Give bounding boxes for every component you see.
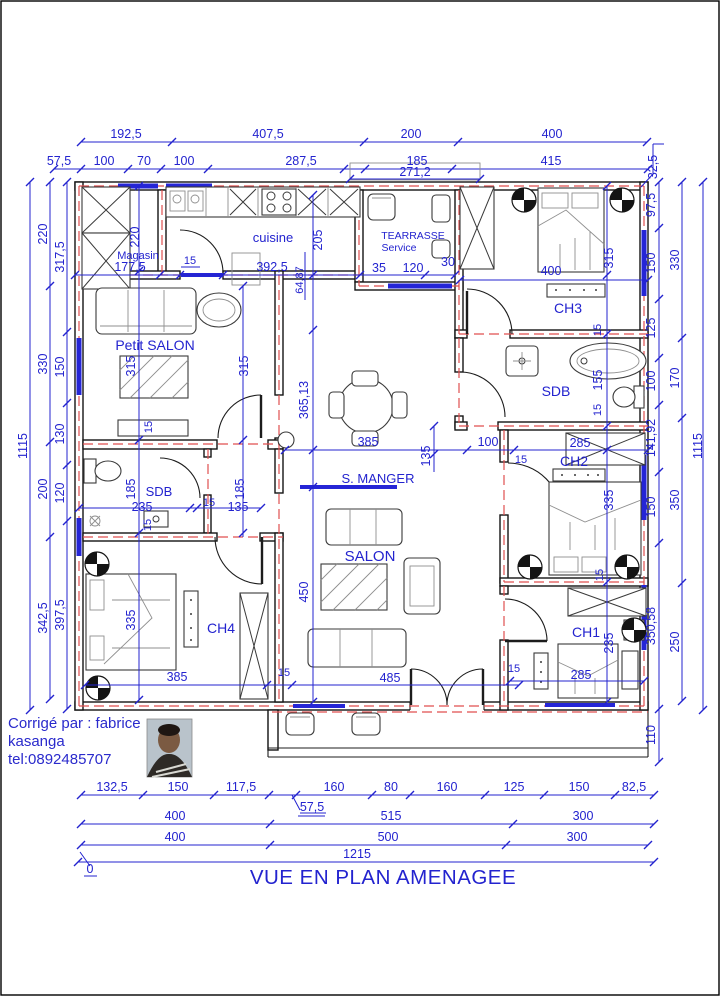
dim: 160 xyxy=(437,780,458,794)
sofa-salon-2 xyxy=(308,629,406,667)
floor-plan-svg: 192,5 407,5 200 400 57,5 100 70 100 287,… xyxy=(0,0,720,996)
dim: 315 xyxy=(124,356,138,377)
room-label-ch3: CH3 xyxy=(554,300,582,316)
pouf xyxy=(197,293,241,327)
dim: 125 xyxy=(644,318,658,339)
dim: 335 xyxy=(602,490,616,511)
dim: 155 xyxy=(591,370,605,391)
salon-furniture xyxy=(308,509,440,667)
dim: 315 xyxy=(602,248,616,269)
dim: 205 xyxy=(311,230,325,251)
dim: 300 xyxy=(567,830,588,844)
dim: 287,5 xyxy=(285,154,316,168)
dim: 15 xyxy=(594,569,606,581)
dim: 160 xyxy=(324,780,345,794)
fan-icon xyxy=(615,555,639,579)
door-arcs-entrance xyxy=(411,669,483,705)
dim: 125 xyxy=(504,780,525,794)
dim: 285 xyxy=(570,436,591,450)
dim: 200 xyxy=(401,127,422,141)
dim: 1115 xyxy=(691,433,705,459)
sdb-right-furniture xyxy=(506,343,646,408)
dim: 385 xyxy=(167,670,188,684)
dim: 130 xyxy=(53,424,67,445)
room-label-petit-salon: Petit SALON xyxy=(115,337,194,353)
room-label-terrasse: TEARRASSE xyxy=(381,230,445,242)
dim: 120 xyxy=(53,483,67,504)
toilet-bowl xyxy=(613,387,635,407)
petit-salon-furniture xyxy=(96,288,241,436)
dim: 185 xyxy=(124,479,138,500)
dim: 97,5 xyxy=(644,193,658,217)
dim: 400 xyxy=(542,127,563,141)
dim: 150 xyxy=(569,780,590,794)
dim: 350 xyxy=(668,490,682,511)
dim: 15 xyxy=(142,519,154,531)
dim: 135 xyxy=(419,446,433,467)
column-marker xyxy=(278,432,294,448)
dim: 220 xyxy=(36,224,50,245)
sofa-petit-salon xyxy=(96,288,196,334)
door-arc-ch1 xyxy=(505,599,547,641)
room-label-s-manger: S. MANGER xyxy=(342,471,415,486)
dim: 15 xyxy=(278,667,290,679)
dim: 15 xyxy=(508,663,520,675)
door-arc-sdb-right xyxy=(462,372,505,417)
dim: 1115 xyxy=(16,433,30,459)
dim: 132,5 xyxy=(96,780,127,794)
dim: 80 xyxy=(384,780,398,794)
signature-line: kasanga xyxy=(8,733,65,750)
dim: 235 xyxy=(132,500,153,514)
dim: 485 xyxy=(380,671,401,685)
dim: 100 xyxy=(478,435,499,449)
dim: 330 xyxy=(36,354,50,375)
dim: 100 xyxy=(644,371,658,392)
dim: 150 xyxy=(53,357,67,378)
dim: 500 xyxy=(378,830,399,844)
fan-icon xyxy=(512,188,536,212)
dim: 117,5 xyxy=(226,780,256,794)
stove xyxy=(262,189,296,215)
dim: 250 xyxy=(668,632,682,653)
dim: 450 xyxy=(297,582,311,603)
room-label-sdb-left: SDB xyxy=(146,484,173,499)
dim: 100 xyxy=(94,154,115,168)
door-arc-petit-salon xyxy=(218,395,261,438)
dim: 192,5 xyxy=(110,127,141,141)
dim: 110 xyxy=(644,725,658,745)
dim: 330 xyxy=(668,250,682,271)
dim: 64,87 xyxy=(294,266,306,294)
dim: 400 xyxy=(165,830,186,844)
room-label-ch1: CH1 xyxy=(572,624,600,640)
dim: 57,5 xyxy=(47,154,71,168)
fan-icon xyxy=(622,618,646,642)
dim: 365,13 xyxy=(297,381,311,419)
dim-origin: 0 xyxy=(87,862,94,876)
fan-icon xyxy=(86,676,110,700)
room-label-ch4: CH4 xyxy=(207,620,235,636)
dim: 150 xyxy=(644,253,658,274)
signature-line: tel:0892485707 xyxy=(8,751,111,768)
dim: 271,2 xyxy=(399,165,430,179)
dim: 315 xyxy=(237,356,251,377)
room-label-cuisine: cuisine xyxy=(253,230,293,245)
room-label-salon: SALON xyxy=(345,548,396,565)
bed-ch3 xyxy=(538,188,604,272)
dim: 135 xyxy=(228,500,249,514)
dim: 342,5 xyxy=(36,602,50,633)
dim: 15 xyxy=(592,404,604,416)
dining-table xyxy=(339,379,393,433)
dim: 15 xyxy=(143,421,155,433)
room-label-sdb-right: SDB xyxy=(542,383,571,399)
dim: 335 xyxy=(124,610,138,631)
dim: 350,58 xyxy=(644,607,658,645)
room-label-terrasse-service: Service xyxy=(381,242,416,254)
dim: 15 xyxy=(184,255,196,267)
dim: 150 xyxy=(168,780,189,794)
dim: 82,5 xyxy=(622,780,646,794)
dim: 385 xyxy=(358,435,379,449)
dim: 15 xyxy=(515,454,527,466)
dim: 35 xyxy=(372,261,386,275)
drawing-sheet: 192,5 407,5 200 400 57,5 100 70 100 287,… xyxy=(0,0,720,996)
dim: 141,92 xyxy=(644,419,658,457)
dim: 285 xyxy=(571,668,592,682)
drawing-title: VUE EN PLAN AMENAGEE xyxy=(250,866,516,889)
fan-icon xyxy=(610,188,634,212)
dim: 30 xyxy=(441,255,455,269)
dim: 235 xyxy=(602,633,616,654)
dim: 100 xyxy=(174,154,195,168)
fan-icon xyxy=(518,555,542,579)
sofa-salon-1 xyxy=(326,509,402,545)
dim: 392,5 xyxy=(256,260,287,274)
dim: 70 xyxy=(137,154,151,168)
dim: 200 xyxy=(36,479,50,500)
signature-block: Corrigé par : fabrice kasanga tel:089248… xyxy=(8,715,192,777)
dim: 407,5 xyxy=(252,127,283,141)
dim: 57,5 xyxy=(300,800,324,814)
toilet-bowl xyxy=(95,461,121,481)
fan-icon xyxy=(85,552,109,576)
dim: 397,5 xyxy=(53,599,67,630)
dim: 415 xyxy=(541,154,562,168)
porch-chairs xyxy=(286,713,380,735)
dim: 400 xyxy=(541,264,562,278)
dim: 300 xyxy=(573,809,594,823)
door-arc-ch4 xyxy=(215,537,262,584)
dim: 170 xyxy=(668,368,682,389)
dim: 317,5 xyxy=(53,241,67,272)
dim: 120 xyxy=(403,261,424,275)
dim: 220 xyxy=(128,227,142,248)
dim: 177,5 xyxy=(114,260,145,274)
dim: 1215 xyxy=(343,847,371,861)
room-label-magasin: Magasin xyxy=(117,250,159,262)
signature-line: Corrigé par : fabrice xyxy=(8,715,141,732)
dim: 15 xyxy=(592,324,604,336)
door-arc-ch3 xyxy=(467,289,512,334)
dim: 400 xyxy=(165,809,186,823)
dim: 32,5 xyxy=(646,155,660,179)
dim: 15 xyxy=(203,497,215,509)
author-photo xyxy=(147,719,192,777)
toilet-tank xyxy=(84,459,96,483)
rug-salon xyxy=(321,564,387,610)
dim: 515 xyxy=(381,809,402,823)
room-label-ch2: CH2 xyxy=(560,453,588,469)
dim: 150 xyxy=(644,497,658,518)
dim: 185 xyxy=(233,479,247,500)
